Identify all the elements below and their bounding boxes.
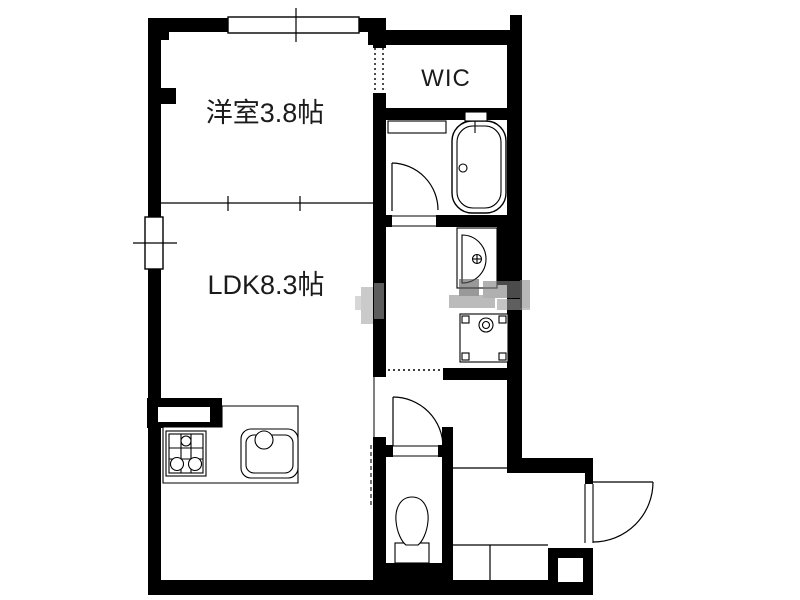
floorplan-image: 洋室3.8帖 WIC LDK8.3帖: [0, 0, 800, 600]
room-label-ldk: LDK8.3帖: [207, 270, 324, 300]
room-label-wic: WIC: [421, 65, 471, 92]
entrance-pillar: [548, 548, 593, 592]
bath-shelf: [388, 121, 446, 133]
kitchen-sink-icon: [241, 429, 298, 478]
toilet-icon: [395, 497, 429, 563]
floor-plan-svg: 洋室3.8帖 WIC LDK8.3帖: [0, 0, 800, 600]
gas-stove-icon: [166, 431, 206, 476]
room-label-western: 洋室3.8帖: [206, 98, 325, 128]
bathtub-icon: [452, 112, 506, 213]
washing-machine-pan-icon: [460, 314, 508, 362]
